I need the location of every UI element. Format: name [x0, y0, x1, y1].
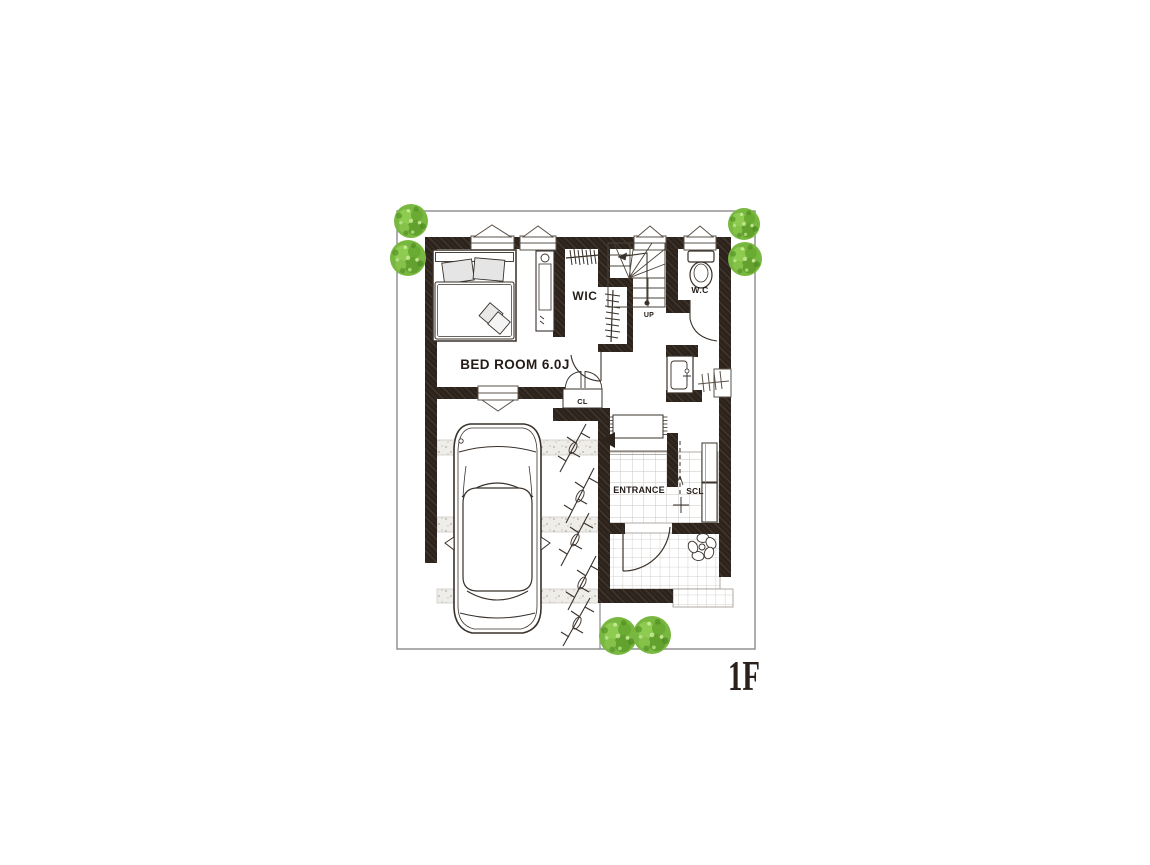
- tree-icon: [633, 616, 671, 654]
- wall-porch-east: [719, 527, 731, 577]
- window-icon: [684, 226, 716, 250]
- car-detail-dot: [459, 439, 463, 443]
- bed-icon: [433, 250, 516, 341]
- up-label: UP: [644, 312, 654, 319]
- wall-porch-south: [598, 589, 673, 603]
- tree-icon: [394, 204, 428, 238]
- floor-label: 1F: [728, 653, 760, 700]
- bedroom-label: BED ROOM 6.0J: [460, 357, 569, 372]
- tree-icon: [599, 617, 637, 655]
- car-mirror-left: [445, 537, 454, 550]
- wc-label: W.C: [691, 285, 708, 295]
- car-roof: [463, 488, 532, 591]
- wall-bedroom-wic: [553, 249, 565, 337]
- car-mirror-right: [541, 537, 550, 550]
- wall-wc-south-stub: [666, 300, 690, 313]
- window-slit-icon: [698, 369, 731, 397]
- window-icon: [520, 226, 556, 250]
- scl-shelf: [702, 443, 717, 482]
- toilet-icon: [688, 251, 714, 288]
- wall-basin-north: [666, 345, 698, 357]
- closet-label: CL: [577, 397, 588, 406]
- plant-stem-icon: [564, 468, 598, 523]
- window-icon: [478, 386, 518, 411]
- tree-icon: [390, 240, 426, 276]
- scl-shelf: [702, 483, 717, 522]
- desk-icon: [536, 251, 554, 331]
- wc-door: [690, 300, 717, 341]
- approach-steps: [673, 589, 733, 607]
- rug-icon: [609, 415, 668, 438]
- plant-stem-icon: [561, 598, 594, 646]
- scl-label: SCL: [686, 486, 704, 496]
- washbasin-icon: [667, 356, 693, 393]
- window-icon: [471, 225, 514, 250]
- tree-icon: [728, 242, 762, 276]
- car-icon: [445, 424, 550, 633]
- entrance-label: ENTRANCE: [613, 485, 665, 495]
- hanger-rod-icon: [566, 249, 599, 265]
- tree-icon: [728, 208, 760, 240]
- floor-plan-canvas: BED ROOM 6.0J WIC W.C UP CL ENTRANCE SCL…: [0, 0, 1150, 865]
- closet-doors: [565, 371, 602, 389]
- wall-scl-stub: [667, 433, 678, 487]
- wic-label: WIC: [572, 289, 597, 303]
